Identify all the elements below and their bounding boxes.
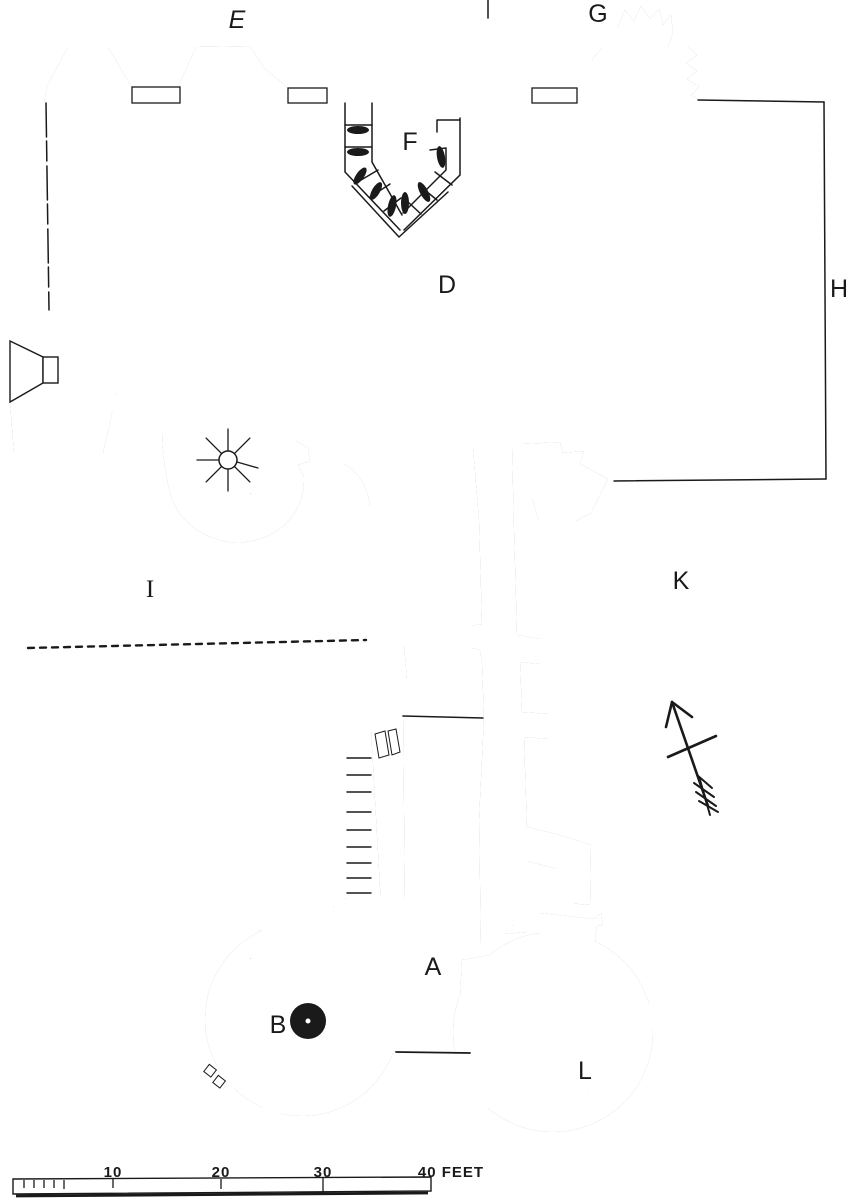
label-f: F <box>402 128 417 156</box>
courtyard-wall-west <box>46 103 49 310</box>
courtyard-wall-north-east <box>698 100 824 102</box>
scale-bar: 10 20 30 40 FEET <box>13 1164 484 1196</box>
passage-check-east <box>456 1008 480 1028</box>
loophole-throat <box>43 357 58 383</box>
buttress-west <box>44 47 132 103</box>
pillar-b-center <box>306 1019 311 1024</box>
scale-tick-30: 30 <box>314 1164 333 1181</box>
spiral-stair-newel <box>219 451 237 469</box>
label-g: G <box>588 0 607 28</box>
step-lens <box>351 166 369 187</box>
buttress-middle <box>178 46 288 103</box>
label-i: I <box>146 576 154 603</box>
corridor-wall-east <box>471 447 548 946</box>
floor-plan-figure: 10 20 30 40 FEET E G F D H I K A B L <box>0 0 851 1200</box>
corridor-wall-west <box>344 448 417 712</box>
masonry-walls <box>8 6 699 1132</box>
scale-end-label: 40 FEET <box>418 1164 484 1181</box>
label-b: B <box>270 1011 287 1039</box>
label-k: K <box>673 567 690 595</box>
gunloop-mouth-block-1 <box>204 1064 217 1077</box>
forework-west-wall <box>316 678 347 916</box>
scale-tick-10: 10 <box>104 1164 123 1181</box>
passage-step-line <box>403 716 483 718</box>
wall-gap-1 <box>132 87 180 103</box>
gate-fragment <box>523 442 608 521</box>
north-arrow-fletching <box>694 775 718 815</box>
stair-flight <box>347 712 371 898</box>
wall-gap-3 <box>532 88 577 103</box>
f-steps-west-inner <box>372 103 402 215</box>
label-l: L <box>578 1057 592 1085</box>
step-lens <box>401 192 409 214</box>
west-wall-lower <box>10 384 117 453</box>
east-wall-notch <box>636 1002 662 1029</box>
label-e: E <box>229 6 246 34</box>
step-lens <box>347 126 369 134</box>
spiral-stair-doorway <box>252 442 302 465</box>
courtyard-wall-south <box>614 479 826 481</box>
north-arrow-crossbar <box>668 736 716 757</box>
courtyard-wall-east <box>824 102 826 479</box>
step-lens <box>347 148 369 156</box>
entrance-pier-east <box>448 18 531 103</box>
step-lens <box>415 180 432 203</box>
stair-mullion <box>370 712 405 905</box>
entrance-threshold <box>396 1052 470 1053</box>
wall-gap-2 <box>288 88 327 103</box>
passage-check-west <box>381 1011 403 1029</box>
label-d: D <box>438 271 456 299</box>
label-h: H <box>830 275 848 303</box>
label-a: A <box>425 953 442 981</box>
scale-tick-20: 20 <box>212 1164 231 1181</box>
door-check-west <box>360 633 377 661</box>
entrance-pier-west <box>327 40 388 103</box>
forework-band <box>340 678 407 712</box>
linework <box>28 0 826 1053</box>
engraved-plan-page: 10 20 30 40 FEET E G F D H I K A B L <box>0 0 851 1200</box>
dashed-line <box>28 640 366 648</box>
arm-notch <box>556 888 574 906</box>
north-arrow-icon <box>666 702 718 815</box>
